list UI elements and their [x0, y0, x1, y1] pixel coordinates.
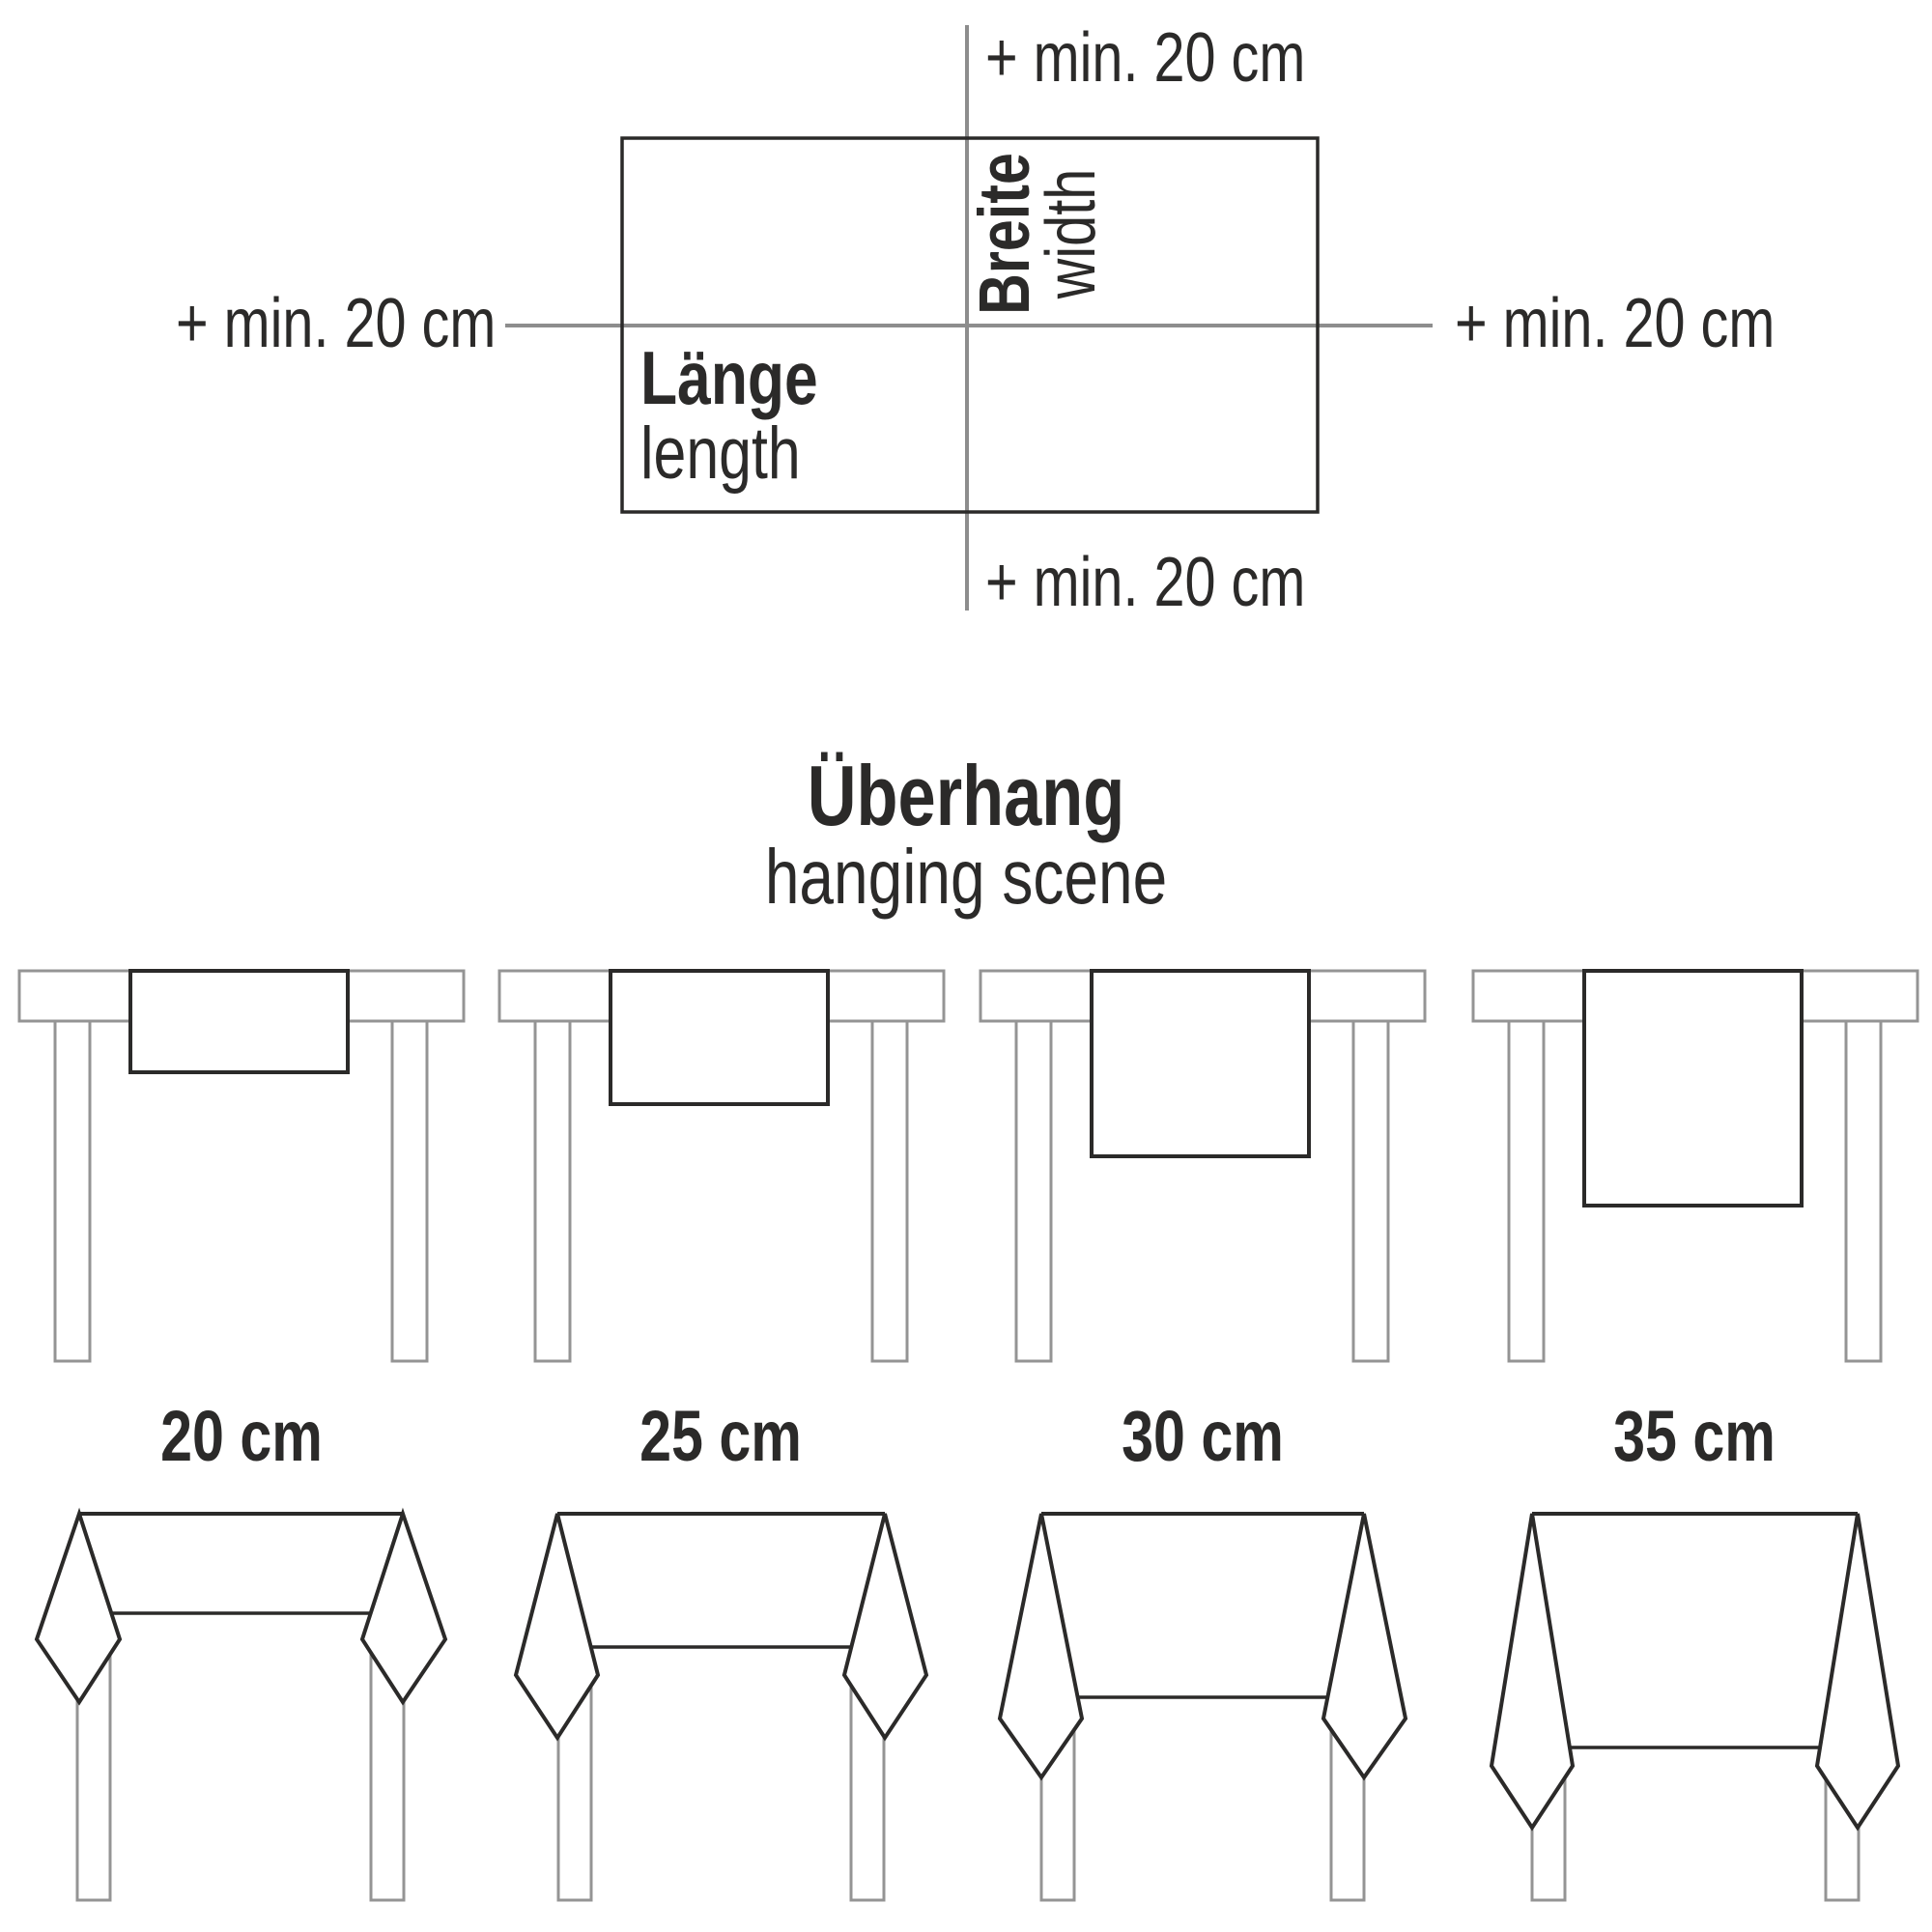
- cloth-front-panel: [1041, 1514, 1364, 1697]
- margin-label-bottom: + min. 20 cm: [985, 548, 1305, 617]
- overhang-label-35cm: 35 cm: [1578, 1401, 1810, 1472]
- width-label-de: Breite: [972, 149, 1037, 319]
- overhang-label-30cm: 30 cm: [1087, 1401, 1319, 1472]
- table-leg: [1846, 1014, 1881, 1361]
- overhang-label-20cm: 20 cm: [126, 1401, 357, 1472]
- margin-label-top: + min. 20 cm: [985, 23, 1305, 93]
- overhang-section-subtitle: hanging scene: [734, 838, 1198, 916]
- length-label-block: Länge length: [640, 340, 863, 491]
- table-runner: [130, 971, 348, 1072]
- table-runner: [1092, 971, 1309, 1156]
- tablecloth-table-35cm: [1492, 1514, 1898, 1900]
- table-leg: [872, 1014, 907, 1361]
- cloth-front-panel: [1532, 1514, 1858, 1747]
- runner-table-25cm: [499, 971, 944, 1361]
- margin-label-left: + min. 20 cm: [176, 289, 485, 358]
- cloth-front-panel: [79, 1514, 403, 1613]
- table-leg: [535, 1014, 570, 1361]
- cloth-front-panel: [557, 1514, 885, 1647]
- table-leg: [55, 1014, 90, 1361]
- margin-label-right: + min. 20 cm: [1455, 289, 1775, 358]
- table-leg: [1353, 1014, 1388, 1361]
- table-runner: [1584, 971, 1802, 1206]
- tablecloth-table-30cm: [1000, 1514, 1406, 1900]
- runner-table-35cm: [1473, 971, 1918, 1361]
- size-diagram: [505, 25, 1433, 611]
- overhang-section-title: Überhang: [734, 753, 1198, 838]
- table-leg: [392, 1014, 427, 1361]
- length-label-en: length: [640, 417, 818, 491]
- runner-table-30cm: [980, 971, 1425, 1361]
- table-leg: [1509, 1014, 1544, 1361]
- width-label-block: Breite width: [972, 149, 1105, 319]
- tablecloth-sizing-diagram: + min. 20 cm + min. 20 cm + min. 20 cm +…: [0, 0, 1932, 1932]
- table-runner: [611, 971, 828, 1104]
- length-label-de: Länge: [640, 340, 818, 415]
- table-leg: [1016, 1014, 1051, 1361]
- overhang-label-25cm: 25 cm: [605, 1401, 837, 1472]
- tablecloth-table-20cm: [37, 1514, 445, 1900]
- width-label-en: width: [1037, 149, 1105, 319]
- runner-table-20cm: [19, 971, 464, 1361]
- tablecloth-table-25cm: [516, 1514, 926, 1900]
